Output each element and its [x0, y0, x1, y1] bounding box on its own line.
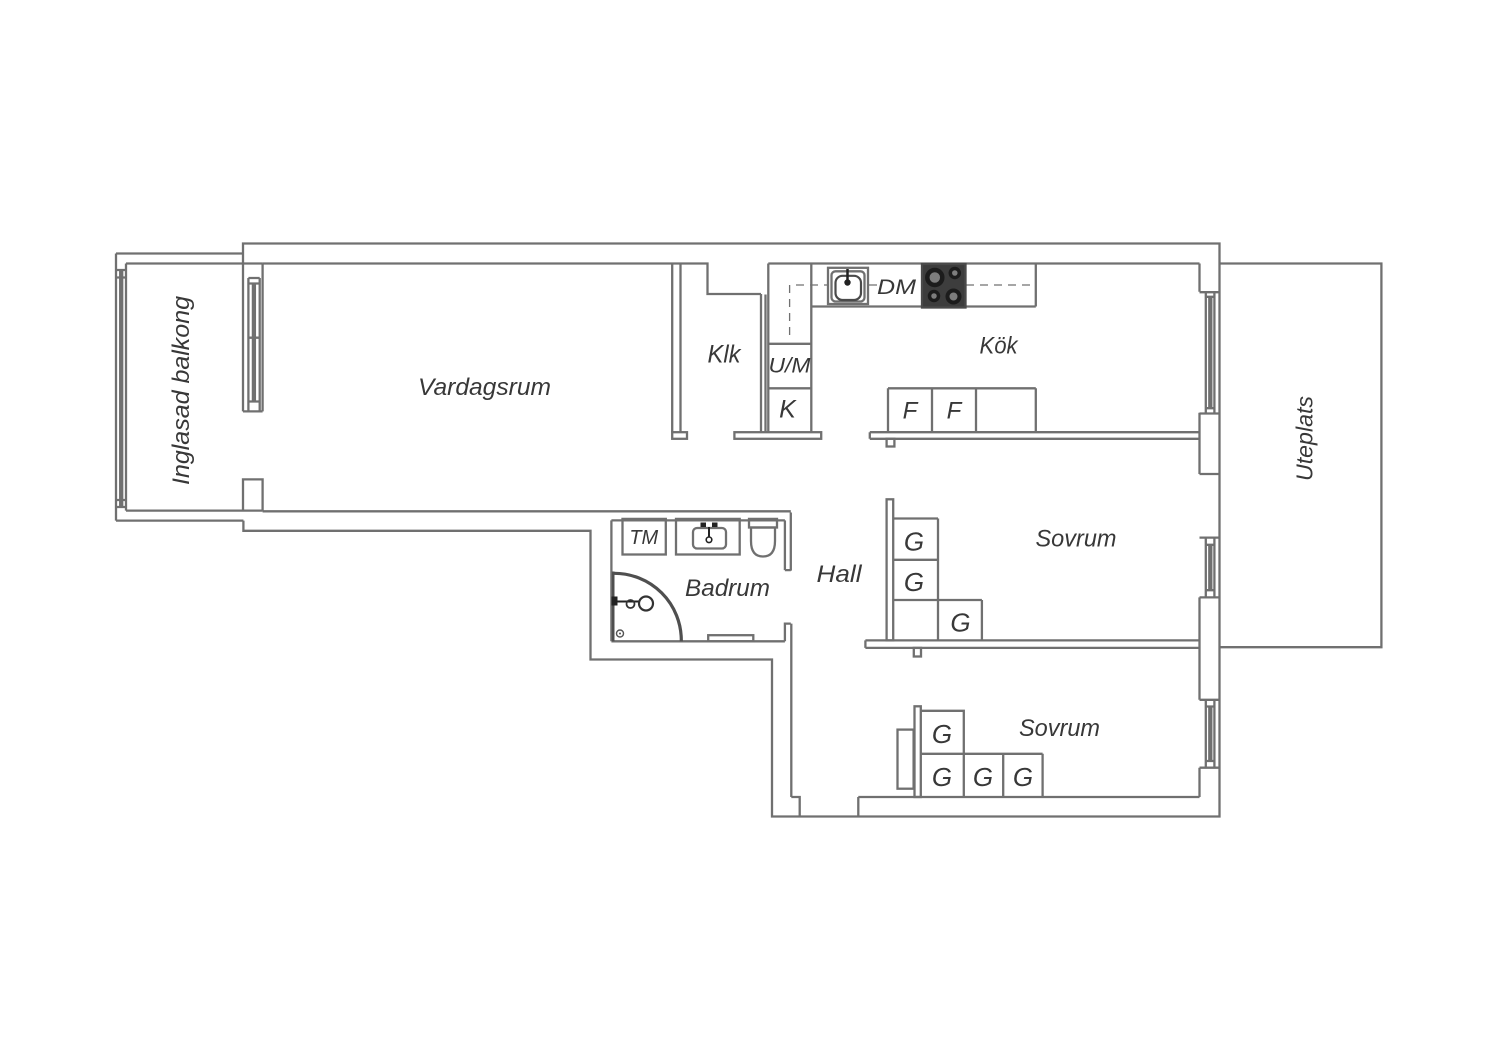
svg-text:Sovrum: Sovrum — [1019, 715, 1100, 742]
svg-text:F: F — [947, 398, 963, 425]
svg-text:G: G — [904, 567, 924, 597]
svg-text:G: G — [904, 527, 924, 557]
svg-text:Kök: Kök — [980, 333, 1020, 360]
svg-text:G: G — [950, 608, 970, 638]
svg-text:K: K — [779, 396, 797, 424]
svg-text:Uteplats: Uteplats — [1292, 395, 1318, 481]
svg-text:Badrum: Badrum — [685, 575, 770, 602]
svg-text:F: F — [903, 398, 919, 425]
svg-text:G: G — [932, 719, 952, 749]
svg-text:G: G — [932, 762, 952, 792]
svg-text:DM: DM — [877, 276, 917, 299]
svg-text:Sovrum: Sovrum — [1036, 526, 1117, 553]
svg-text:U/M: U/M — [769, 355, 812, 378]
svg-text:G: G — [1013, 762, 1033, 792]
svg-text:G: G — [973, 762, 993, 792]
svg-text:Vardagsrum: Vardagsrum — [418, 374, 551, 401]
svg-text:Inglasad balkong: Inglasad balkong — [168, 295, 195, 485]
svg-text:Klk: Klk — [708, 341, 742, 369]
svg-text:TM: TM — [629, 527, 658, 549]
svg-text:Hall: Hall — [817, 561, 863, 588]
